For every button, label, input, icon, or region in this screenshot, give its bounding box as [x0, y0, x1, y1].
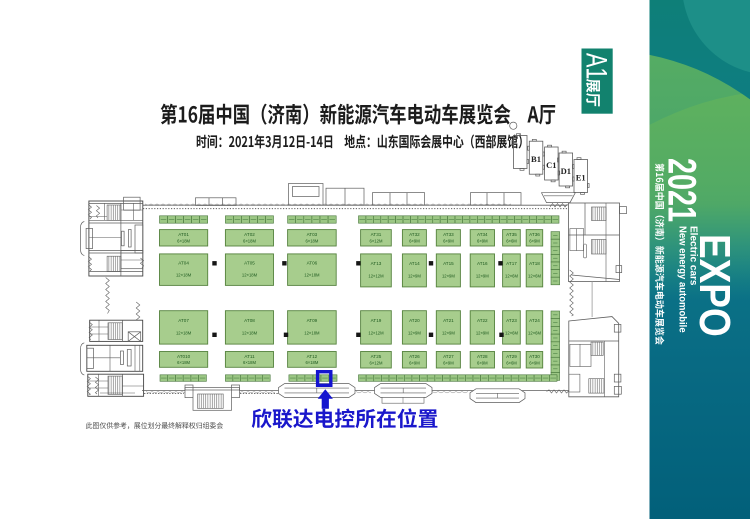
svg-text:12×9M: 12×9M: [442, 331, 455, 336]
svg-text:12×6M: 12×6M: [528, 331, 541, 336]
svg-text:12×18M: 12×18M: [304, 331, 320, 336]
svg-text:12×9M: 12×9M: [408, 274, 421, 279]
svg-text:EXPO: EXPO: [690, 234, 740, 337]
svg-text:6×18M: 6×18M: [177, 360, 190, 365]
svg-text:12×9M: 12×9M: [408, 331, 421, 336]
svg-text:12×9M: 12×9M: [476, 274, 489, 279]
svg-text:D1: D1: [561, 166, 571, 176]
svg-text:12×18M: 12×18M: [242, 331, 258, 336]
svg-text:12×18M: 12×18M: [176, 273, 192, 278]
svg-text:12×6M: 12×6M: [528, 274, 541, 279]
svg-text:6×12M: 6×12M: [370, 238, 383, 243]
svg-text:AT28: AT28: [477, 354, 488, 359]
svg-text:AT14: AT14: [409, 261, 420, 266]
svg-text:AT15: AT15: [443, 261, 454, 266]
svg-text:AT25: AT25: [371, 354, 382, 359]
svg-text:AT30: AT30: [529, 354, 540, 359]
svg-text:AT24: AT24: [529, 318, 540, 323]
svg-text:AT06: AT06: [307, 261, 318, 266]
svg-text:AT19: AT19: [371, 318, 382, 323]
svg-text:6×9M: 6×9M: [477, 360, 488, 365]
svg-text:6×18M: 6×18M: [305, 238, 318, 243]
svg-text:E1: E1: [576, 173, 586, 183]
svg-text:AT010: AT010: [177, 354, 191, 359]
svg-text:AT12: AT12: [307, 354, 318, 359]
svg-text:6×9M: 6×9M: [409, 360, 420, 365]
svg-text:AT18: AT18: [529, 261, 540, 266]
svg-text:AT08: AT08: [244, 318, 255, 323]
svg-text:AT03: AT03: [307, 232, 318, 237]
svg-text:AT02: AT02: [244, 232, 255, 237]
svg-text:AT17: AT17: [506, 261, 517, 266]
svg-text:AT13: AT13: [371, 261, 382, 266]
svg-text:12×12M: 12×12M: [368, 331, 384, 336]
svg-text:AT07: AT07: [178, 318, 189, 323]
svg-text:AT09: AT09: [307, 318, 318, 323]
svg-text:6×18M: 6×18M: [243, 360, 256, 365]
svg-text:12×12M: 12×12M: [368, 274, 384, 279]
svg-text:12×18M: 12×18M: [304, 273, 320, 278]
svg-text:AT21: AT21: [443, 318, 454, 323]
svg-text:12×6M: 12×6M: [505, 274, 518, 279]
svg-text:AT31: AT31: [371, 232, 382, 237]
svg-text:6×12M: 6×12M: [370, 360, 383, 365]
svg-text:6×18M: 6×18M: [177, 238, 190, 243]
svg-text:6×9M: 6×9M: [529, 238, 540, 243]
svg-text:AT27: AT27: [443, 354, 454, 359]
svg-text:A1: A1: [580, 53, 614, 79]
svg-text:AT01: AT01: [178, 232, 189, 237]
svg-text:New energy automobile: New energy automobile: [676, 226, 687, 333]
svg-text:12×9M: 12×9M: [476, 331, 489, 336]
svg-text:6×9M: 6×9M: [477, 238, 488, 243]
svg-text:6×9M: 6×9M: [409, 238, 420, 243]
svg-text:AT32: AT32: [409, 232, 420, 237]
svg-text:AT11: AT11: [244, 354, 255, 359]
svg-text:12×9M: 12×9M: [442, 274, 455, 279]
svg-text:C1: C1: [546, 160, 556, 170]
svg-text:6×6M: 6×6M: [506, 238, 517, 243]
svg-text:AT04: AT04: [178, 261, 189, 266]
svg-text:6×9M: 6×9M: [529, 360, 540, 365]
svg-text:AT26: AT26: [409, 354, 420, 359]
svg-text:AT35: AT35: [506, 232, 517, 237]
svg-text:AT33: AT33: [443, 232, 454, 237]
svg-text:AT22: AT22: [477, 318, 488, 323]
svg-text:12×18M: 12×18M: [176, 331, 192, 336]
svg-text:6×18M: 6×18M: [243, 238, 256, 243]
svg-text:2021: 2021: [659, 158, 704, 222]
svg-text:AT36: AT36: [529, 232, 540, 237]
svg-text:12×18M: 12×18M: [242, 273, 258, 278]
svg-text:AT05: AT05: [244, 261, 255, 266]
svg-text:6×9M: 6×9M: [443, 360, 454, 365]
svg-text:6×18M: 6×18M: [305, 360, 318, 365]
svg-text:AT23: AT23: [506, 318, 517, 323]
svg-text:AT20: AT20: [409, 318, 420, 323]
svg-text:B1: B1: [531, 154, 541, 164]
svg-text:AT34: AT34: [477, 232, 488, 237]
svg-text:AT29: AT29: [506, 354, 517, 359]
svg-text:6×9M: 6×9M: [443, 238, 454, 243]
svg-text:AT16: AT16: [477, 261, 488, 266]
svg-text:12×6M: 12×6M: [505, 331, 518, 336]
svg-text:6×6M: 6×6M: [506, 360, 517, 365]
